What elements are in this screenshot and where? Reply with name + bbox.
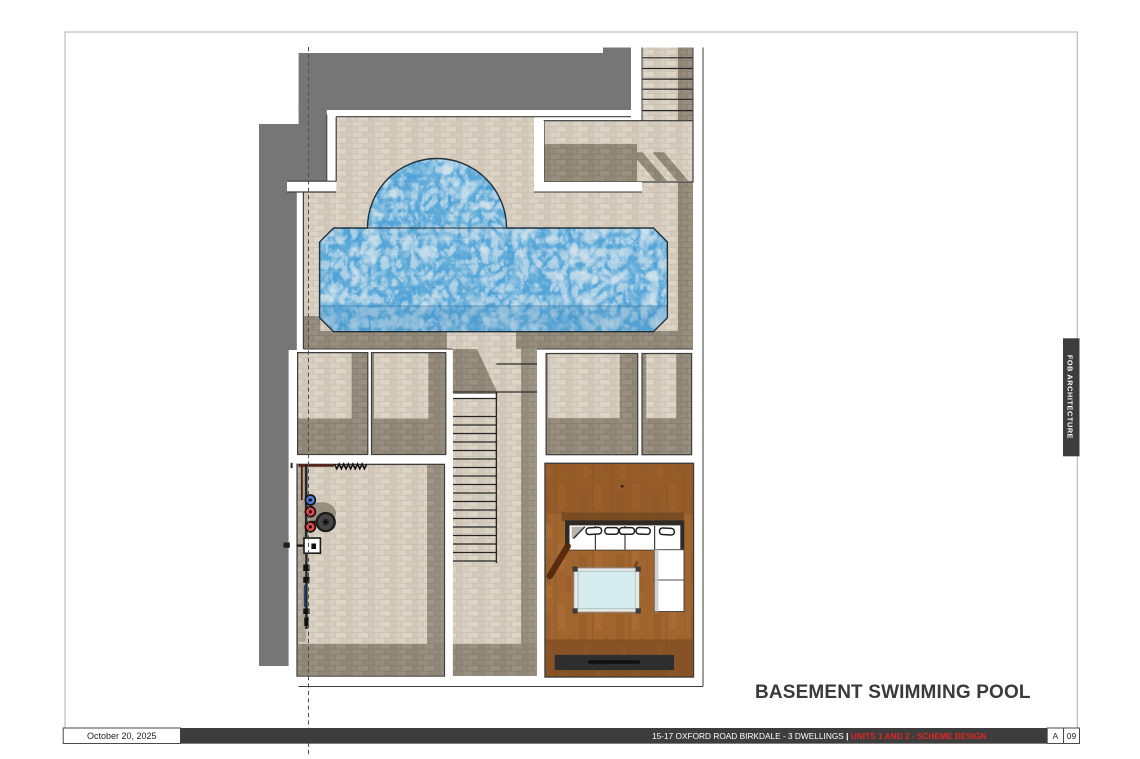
svg-text:BASEMENT SWIMMING POOL: BASEMENT SWIMMING POOL (755, 682, 1031, 703)
svg-text:A: A (1052, 731, 1058, 741)
svg-text:09: 09 (1067, 731, 1077, 741)
svg-text:October 20, 2025: October 20, 2025 (87, 731, 157, 741)
svg-text:FOB ARCHITECTURE: FOB ARCHITECTURE (1066, 355, 1075, 439)
svg-text:15-17 OXFORD ROAD BIRKDALE - 3: 15-17 OXFORD ROAD BIRKDALE - 3 DWELLINGS… (652, 731, 986, 741)
